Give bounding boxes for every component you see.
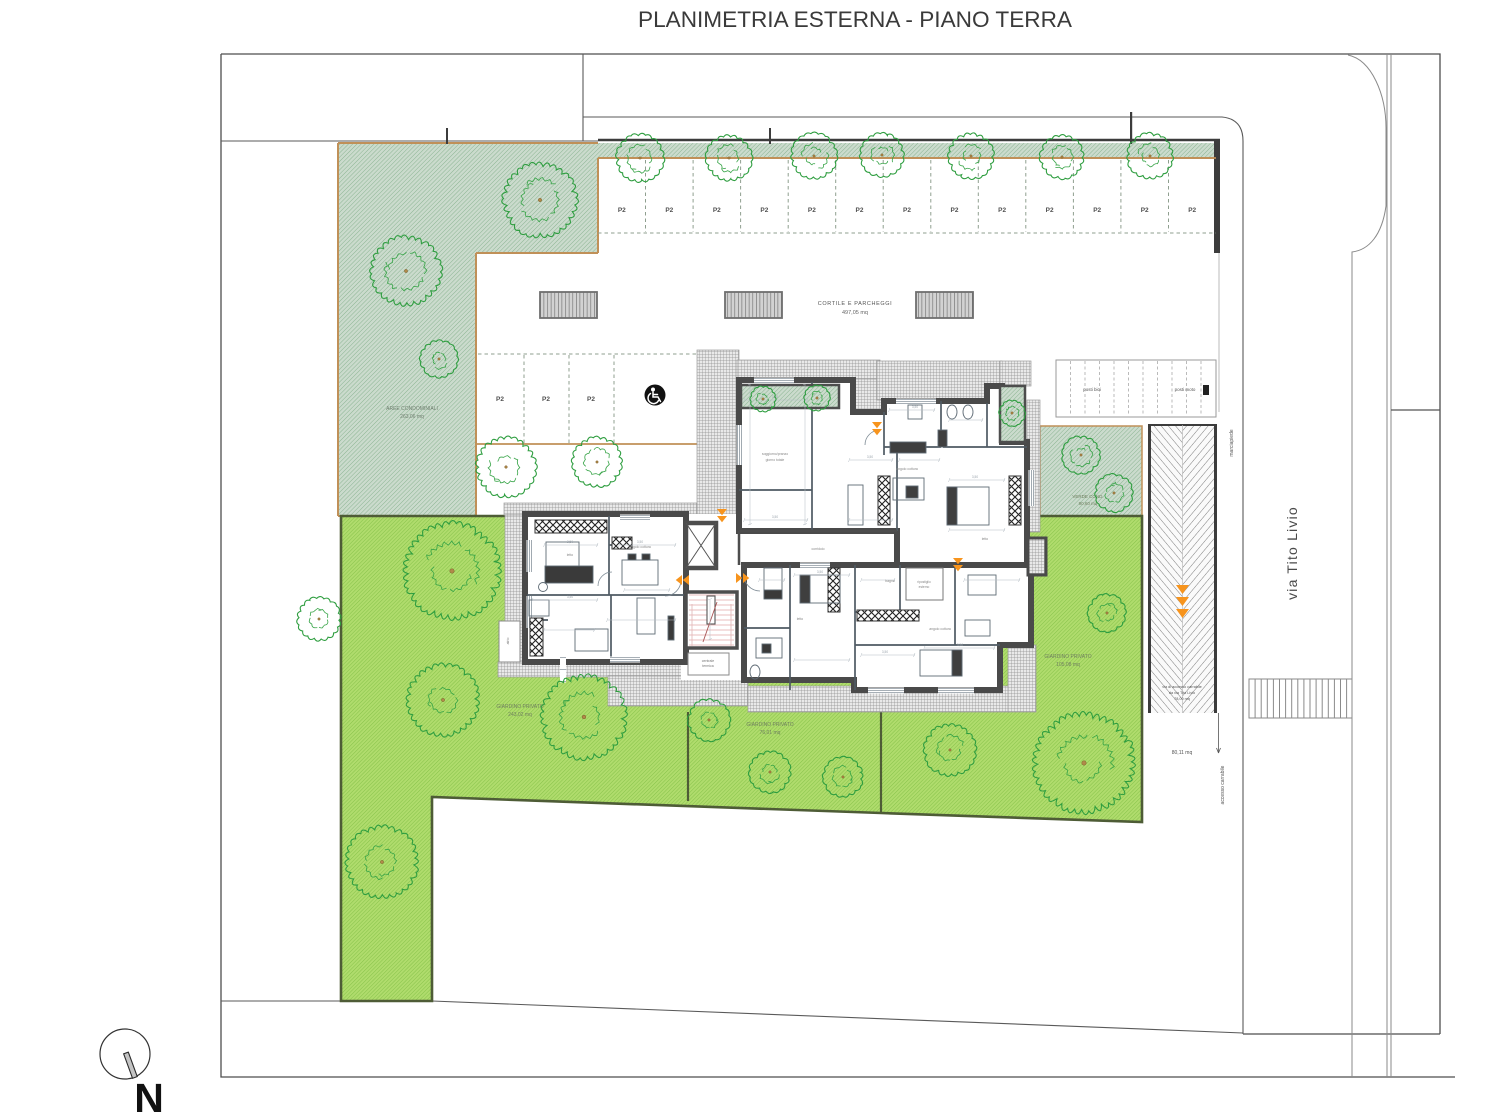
svg-text:N: N	[134, 1075, 164, 1115]
svg-text:3,50: 3,50	[567, 595, 573, 599]
svg-text:angolo cottura: angolo cottura	[929, 627, 951, 631]
svg-text:bagno: bagno	[885, 579, 895, 583]
svg-text:GIARDINO PRIVATO: GIARDINO PRIVATO	[746, 722, 793, 728]
svg-text:GIARDINO PRIVATO: GIARDINO PRIVATO	[1044, 654, 1091, 660]
svg-text:termica: termica	[702, 664, 714, 668]
svg-text:3,50: 3,50	[637, 540, 643, 544]
svg-text:angolo cottura: angolo cottura	[896, 467, 918, 471]
svg-text:accesso carrabile: accesso carrabile	[1220, 765, 1226, 804]
svg-text:P2: P2	[808, 207, 816, 214]
svg-text:VERDE COND.: VERDE COND.	[1072, 494, 1103, 499]
svg-text:P2: P2	[856, 207, 864, 214]
svg-text:P2: P2	[760, 207, 768, 214]
svg-text:letto: letto	[797, 617, 804, 621]
svg-text:P2: P2	[665, 207, 673, 214]
svg-text:263,06 mq: 263,06 mq	[400, 414, 424, 420]
svg-text:3,50: 3,50	[817, 570, 823, 574]
svg-text:ripostiglio: ripostiglio	[917, 580, 931, 584]
svg-text:atrio: atrio	[506, 638, 510, 645]
svg-text:76,01 mq: 76,01 mq	[760, 730, 781, 736]
svg-text:CORTILE E PARCHEGGI: CORTILE E PARCHEGGI	[818, 301, 892, 307]
svg-text:P2: P2	[998, 207, 1006, 214]
svg-text:posti moto: posti moto	[1175, 387, 1196, 392]
svg-text:GIARDINO PRIVATO: GIARDINO PRIVATO	[496, 704, 543, 710]
svg-text:angolo cottura: angolo cottura	[629, 545, 651, 549]
svg-text:letto: letto	[567, 553, 574, 557]
svg-text:3,50: 3,50	[867, 455, 873, 459]
svg-text:esterno: esterno	[919, 585, 930, 589]
svg-text:via Tito Livio: via Tito Livio	[1284, 506, 1300, 600]
svg-text:posti bici: posti bici	[1083, 387, 1101, 392]
svg-text:da via Tito Livio: da via Tito Livio	[1169, 691, 1195, 695]
svg-text:corridoio: corridoio	[811, 547, 824, 551]
svg-text:P2: P2	[903, 207, 911, 214]
svg-text:P2: P2	[618, 207, 626, 214]
svg-text:3,50: 3,50	[882, 650, 888, 654]
svg-text:3,50: 3,50	[567, 540, 573, 544]
svg-text:P2: P2	[587, 396, 595, 403]
svg-text:P2: P2	[1093, 207, 1101, 214]
svg-text:P2: P2	[1188, 207, 1196, 214]
svg-text:PLANIMETRIA ESTERNA - PIANO TE: PLANIMETRIA ESTERNA - PIANO TERRA	[638, 7, 1073, 32]
svg-text:giorno totale: giorno totale	[766, 458, 785, 462]
svg-text:90,60 mq: 90,60 mq	[1079, 501, 1098, 506]
svg-text:P2: P2	[496, 396, 504, 403]
svg-text:P2: P2	[713, 207, 721, 214]
svg-text:P2: P2	[1046, 207, 1054, 214]
svg-text:3,50: 3,50	[772, 515, 778, 519]
svg-text:AREE CONDOMINIALI: AREE CONDOMINIALI	[386, 406, 438, 412]
svg-text:105,08 mq: 105,08 mq	[1056, 662, 1080, 668]
svg-text:marciapiede: marciapiede	[1229, 429, 1235, 456]
svg-text:3,50: 3,50	[972, 475, 978, 479]
svg-text:80,11 mq: 80,11 mq	[1172, 750, 1193, 756]
svg-text:P2: P2	[542, 396, 550, 403]
svg-text:497,05 mq: 497,05 mq	[842, 310, 868, 316]
svg-text:3,50: 3,50	[957, 643, 963, 647]
svg-text:letto: letto	[982, 537, 989, 541]
svg-text:P2: P2	[1141, 207, 1149, 214]
svg-text:centrale: centrale	[702, 659, 715, 663]
svg-text:P2: P2	[951, 207, 959, 214]
svg-text:3,50: 3,50	[912, 405, 918, 409]
svg-text:soggiorno/pranzo: soggiorno/pranzo	[762, 452, 788, 456]
svg-text:243,02 mq: 243,02 mq	[508, 712, 532, 718]
svg-text:78,00 mq: 78,00 mq	[1174, 697, 1190, 701]
svg-text:via di accesso carrabile: via di accesso carrabile	[1162, 685, 1201, 689]
